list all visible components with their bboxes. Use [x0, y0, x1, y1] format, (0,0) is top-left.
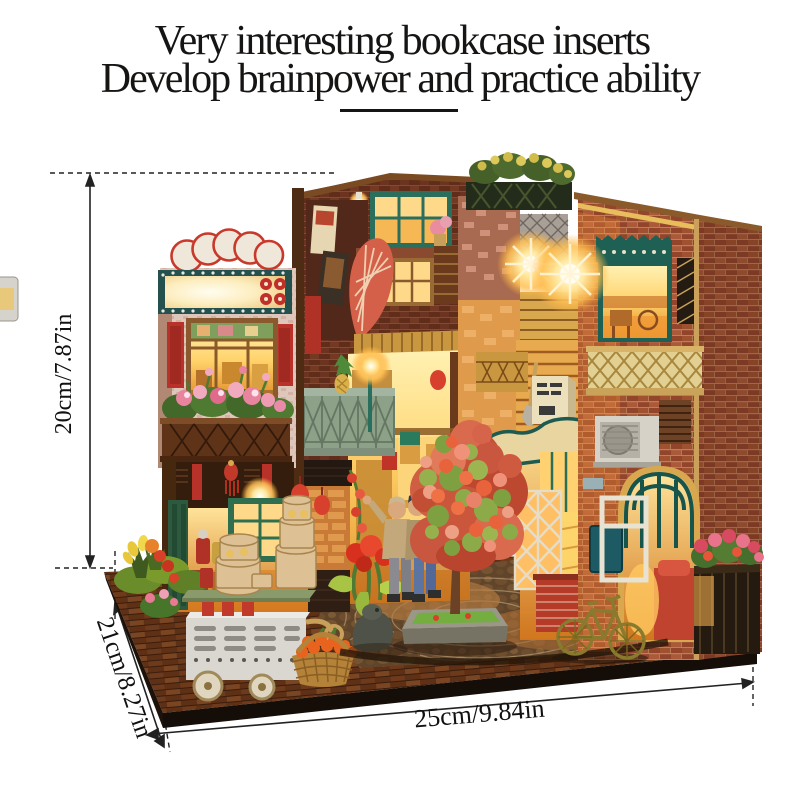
svg-text:Develop brainpower and practic: Develop brainpower and practice ability: [101, 56, 701, 102]
svg-text:20cm/7.87in: 20cm/7.87in: [51, 314, 77, 435]
